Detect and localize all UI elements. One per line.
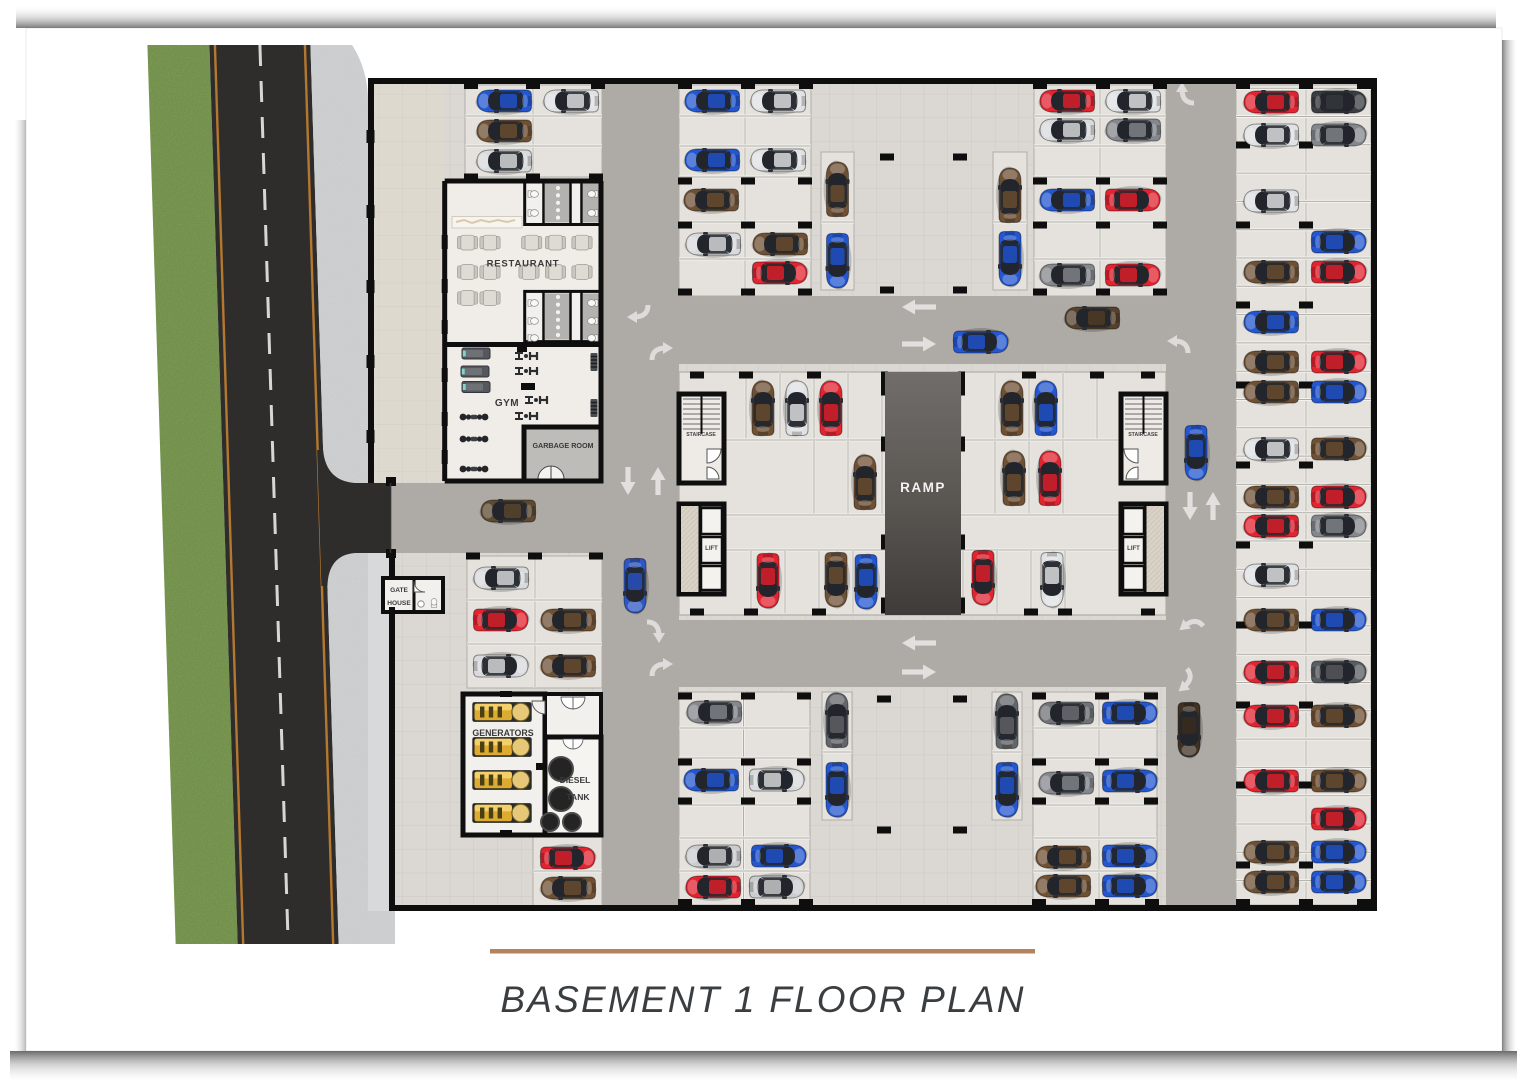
svg-text:STAIRCASE: STAIRCASE [1128,432,1158,438]
svg-text:LIFT: LIFT [1127,546,1140,552]
svg-text:BASEMENT 1 FLOOR PLAN: BASEMENT 1 FLOOR PLAN [500,979,1025,1020]
svg-text:LIFT: LIFT [705,546,718,552]
svg-text:GARBAGE ROOM: GARBAGE ROOM [532,441,593,450]
svg-text:GYM: GYM [495,398,519,409]
svg-text:GATE: GATE [390,587,408,594]
svg-text:HOUSE: HOUSE [387,600,411,607]
svg-text:RESTAURANT: RESTAURANT [487,259,560,270]
svg-text:RAMP: RAMP [900,480,946,495]
svg-text:GENERATORS: GENERATORS [472,728,533,738]
svg-text:TANK: TANK [567,792,591,802]
svg-text:DIESEL: DIESEL [560,775,591,785]
svg-text:STAIRCASE: STAIRCASE [686,432,716,438]
